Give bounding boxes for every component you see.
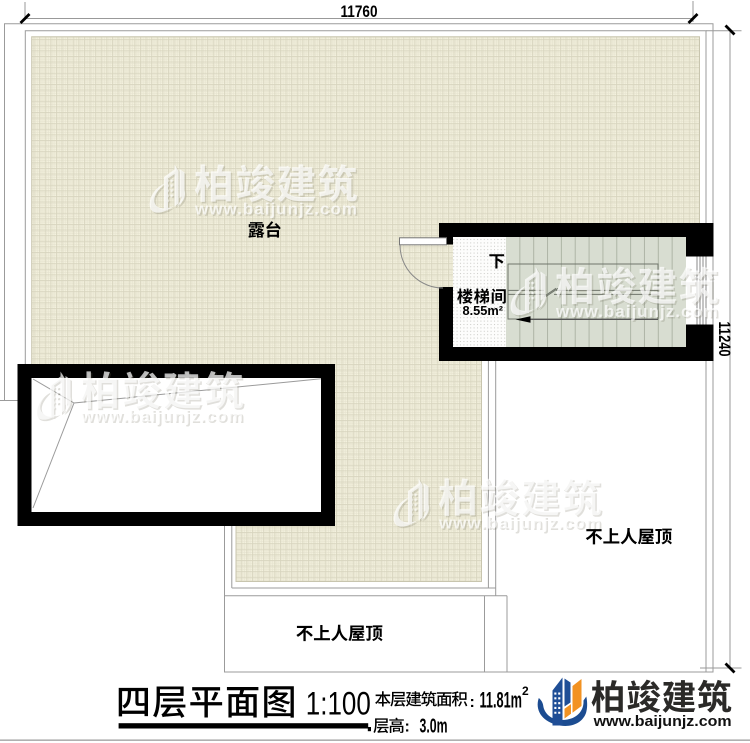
svg-text:11.81m: 11.81m	[480, 688, 523, 713]
svg-text:3.0m: 3.0m	[420, 714, 448, 737]
svg-text::: :	[470, 694, 475, 711]
svg-text::: :	[405, 719, 410, 736]
svg-text:8.55m²: 8.55m²	[463, 303, 504, 318]
svg-text:11240: 11240	[715, 322, 733, 357]
svg-text:www.baijunjz.com: www.baijunjz.com	[592, 714, 731, 730]
svg-text:11760: 11760	[341, 3, 378, 21]
svg-text:1:100: 1:100	[306, 685, 371, 721]
svg-text:2: 2	[522, 684, 529, 698]
